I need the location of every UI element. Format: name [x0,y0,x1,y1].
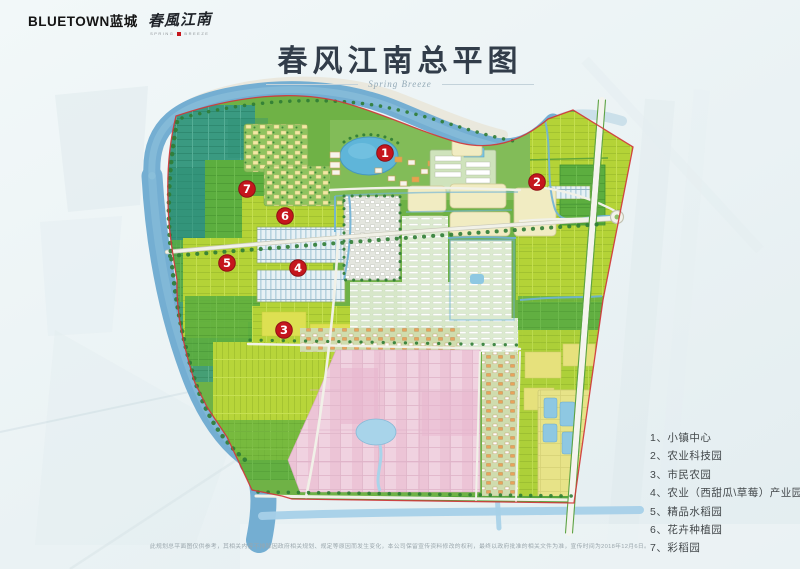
title-script: Spring Breeze [368,79,431,89]
svg-text:1: 1 [381,146,389,160]
divider-rule-right [442,84,534,85]
legend-item-5: 5、精品水稻园 [650,503,800,521]
brand-seal-icon [177,32,181,36]
svg-text:3: 3 [280,323,288,337]
disclaimer-text: 此规划总平面图仅供参考，其相关内容不排除因政府相关规划、规定等原因而发生变化，本… [0,541,800,550]
svg-text:5: 5 [223,256,231,270]
legend-item-6: 6、花卉种植园 [650,521,800,539]
brand-calligraphy: 春風江南 SPRING BREEZE [148,12,212,36]
brand-script: 春風江南 [147,11,212,31]
title-divider: Spring Breeze [0,79,800,89]
legend-item-2: 2、农业科技园 [650,447,800,465]
divider-rule-left [266,84,358,85]
map-marker-7: 7 [239,181,256,198]
map-marker-2: 2 [529,174,546,191]
brand-wordmark: BLUETOWN蓝城 [28,14,138,30]
poster: 1 2 3 4 5 6 7 BLUETOWN蓝城 春風江南 SPRING BRE… [0,0,800,569]
map-marker-4: 4 [290,260,307,277]
map-legend: 1、小镇中心 2、农业科技园 3、市民农园 4、农业（西甜瓜\草莓）产业园 5、… [650,429,800,558]
region-southeast-fields [518,330,618,506]
region-village-strip [482,352,520,502]
map-marker-3: 3 [276,322,293,339]
legend-item-3: 3、市民农园 [650,466,800,484]
brand-logo: BLUETOWN蓝城 春風江南 SPRING BREEZE [28,14,212,36]
map-marker-6: 6 [277,208,294,225]
legend-item-4: 4、农业（西甜瓜\草莓）产业园 [650,484,800,502]
svg-text:4: 4 [294,261,302,275]
svg-text:7: 7 [243,182,251,196]
svg-text:6: 6 [281,209,289,223]
map-marker-1: 1 [377,145,394,162]
svg-text:2: 2 [533,175,541,189]
legend-item-1: 1、小镇中心 [650,429,800,447]
map-marker-5: 5 [219,255,236,272]
page-title: 春风江南总平图 [0,36,800,80]
